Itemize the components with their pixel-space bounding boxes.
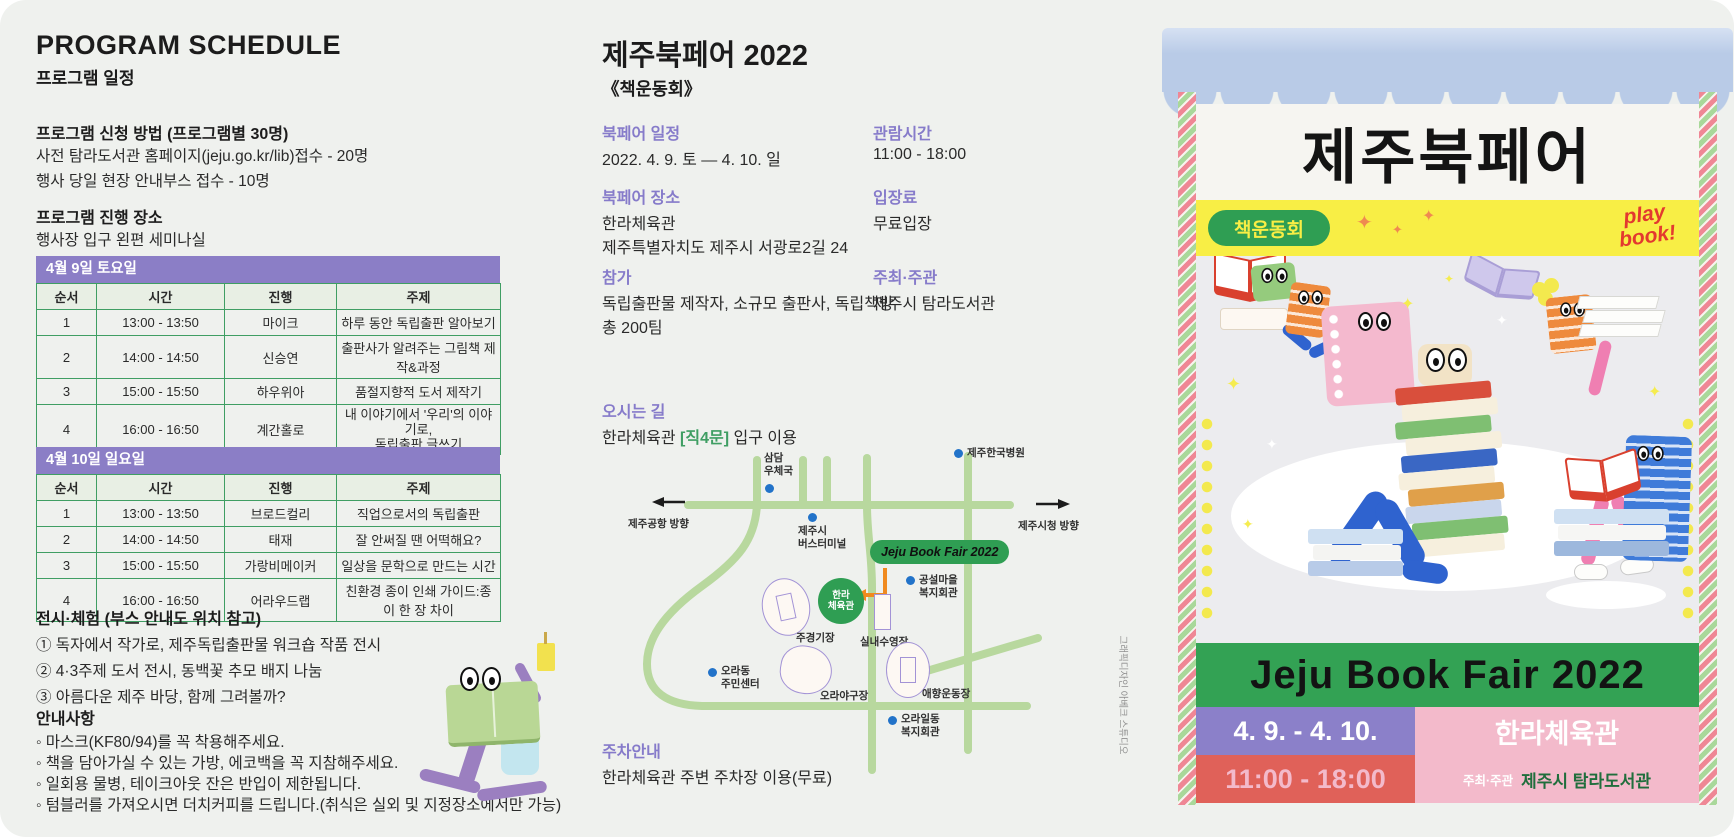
poi-dot (906, 576, 915, 585)
day1-header: 4월 9일 토요일 (36, 256, 500, 283)
eye (460, 667, 479, 691)
character-eyes (1298, 290, 1323, 304)
cityhall-direction-label: 제주시청 방향 (1018, 518, 1079, 533)
eye (1312, 290, 1323, 304)
fee-label: 입장료 (873, 184, 917, 208)
exhibit-item: ① 독자에서 작가로, 제주독립출판물 워크숍 작품 전시 (36, 633, 381, 659)
eye (1448, 348, 1467, 372)
cell: 신승연 (225, 336, 337, 379)
poster-host-cell: 주최·주관 제주시 탐라도서관 (1415, 755, 1699, 803)
apply-method-block: 프로그램 신청 방법 (프로그램별 30명) 사전 탐라도서관 홈페이지(jej… (36, 120, 368, 194)
cell: 품절지향적 도서 제작기 (337, 379, 501, 405)
table-row: 3 15:00 - 15:50 하우위아 품절지향적 도서 제작기 (37, 379, 501, 405)
col-topic: 주제 (337, 284, 501, 310)
ground-shadow (1546, 581, 1666, 609)
stacked-book (1308, 561, 1403, 576)
day2-header: 4월 10일 일요일 (36, 447, 500, 474)
fair-location-badge: Jeju Book Fair 2022 (870, 540, 1009, 564)
program-venue-block: 프로그램 진행 장소 행사장 입구 왼편 세미나실 (36, 204, 206, 253)
poi-gongseol: 공설마을 복지회관 (919, 574, 958, 599)
poster-venue-cell: 한라체육관 (1415, 707, 1699, 755)
host-value: 제주시 탐라도서관 (873, 290, 995, 314)
airport-direction-label: 제주공항 방향 (628, 516, 689, 531)
eye (1276, 268, 1288, 283)
eye (1261, 268, 1273, 283)
striped-pole-right (1699, 92, 1717, 805)
program-schedule-title: PROGRAM SCHEDULE (36, 30, 341, 61)
paper-sheet (1576, 296, 1659, 309)
venue-map: 제주공항 방향 제주시청 방향 삼담 우체국 제주한국병원 제주시 버스터미널 … (590, 418, 1090, 790)
hours-label: 관람시간 (873, 120, 932, 144)
stacked-book (1554, 541, 1669, 556)
eye (1376, 312, 1391, 331)
program-venue-heading: 프로그램 진행 장소 (36, 204, 206, 228)
host-label: 주최·주관 (873, 264, 937, 288)
cell: 일상을 문학으로 만드는 시간 (337, 553, 501, 579)
reading-character-illustration (405, 633, 585, 813)
stadium-field (775, 593, 796, 622)
table-row: 2 14:00 - 14:50 신승연 출판사가 알려주는 그림책 제작&과정 (37, 336, 501, 379)
fair-subtitle: 《책운동회》 (602, 76, 701, 101)
apply-method-heading: 프로그램 신청 방법 (프로그램별 30명) (36, 120, 368, 144)
sparkle-icon: ✦ (1392, 222, 1403, 238)
cell: 15:00 - 15:50 (97, 553, 225, 579)
parking-value: 한라체육관 주변 주차장 이용(무료) (602, 764, 832, 788)
join-label: 참가 (602, 264, 631, 288)
table-header-row: 순서 시간 진행 주제 (37, 284, 501, 310)
poi-ora-center: 오라동 주민센터 (721, 665, 760, 690)
col-order: 순서 (37, 475, 97, 501)
poster-sign-title: 제주북페어 (1196, 104, 1699, 200)
cell: 가랑비메이커 (225, 553, 337, 579)
character-eyes (1637, 446, 1663, 461)
place-value2: 제주특별자치도 제주시 서광로2길 24 (602, 234, 848, 258)
poi-bus-terminal: 제주시 버스터미널 (798, 525, 846, 550)
join-value2: 총 200팀 (602, 314, 663, 338)
book-page (1601, 447, 1641, 501)
cell: 15:00 - 15:50 (97, 379, 225, 405)
cell: 브로드컬리 (225, 501, 337, 527)
apply-method-line1: 사전 탐라도서관 홈페이지(jeju.go.kr/lib)접수 - 20명 (36, 144, 368, 169)
col-time: 시간 (97, 284, 225, 310)
exhibit-block: 전시·체험 (부스 안내도 위치 참고) ① 독자에서 작가로, 제주독립출판물… (36, 605, 381, 711)
cell: 13:00 - 13:50 (97, 310, 225, 336)
pompom (1532, 282, 1547, 297)
cell: 1 (37, 501, 97, 527)
cell: 1 (37, 310, 97, 336)
sneaker (1574, 564, 1608, 580)
pool-shape (874, 594, 891, 630)
stadium-label: 주경기장 (796, 632, 835, 645)
sparkle-icon: ✦ (1401, 294, 1414, 314)
venue-circle-badge: 한라 체육관 (818, 578, 864, 624)
poi-dot (954, 449, 963, 458)
brochure-page: PROGRAM SCHEDULE 프로그램 일정 프로그램 신청 방법 (프로그… (0, 0, 1734, 837)
poi-ora-welfare: 오라일동 복지회관 (901, 713, 940, 738)
sparkle-icon: ✦ (1496, 312, 1508, 329)
poster-date-cell: 4. 9. - 4. 10. (1196, 707, 1415, 755)
poster-yellow-band: 책운동회 ✦ ✦ ✦ play book! (1196, 200, 1699, 256)
eye (1426, 348, 1445, 372)
cell: 3 (37, 553, 97, 579)
cell: 출판사가 알려주는 그림책 제작&과정 (337, 336, 501, 379)
striped-pole-left (1178, 92, 1196, 805)
paper-sheet (1582, 310, 1665, 323)
col-time: 시간 (97, 475, 225, 501)
col-host: 진행 (225, 284, 337, 310)
eye (1298, 290, 1309, 304)
poster-illustration: ✦ ✦ ✦ ✦ ✦ ✦ ✦ (1196, 256, 1699, 643)
fair-title: 제주북페어 2022 (602, 32, 808, 74)
eye (1358, 312, 1373, 331)
poster-host-value: 제주시 탐라도서관 (1521, 767, 1651, 792)
book-sports-badge: 책운동회 (1208, 210, 1330, 246)
schedule-table-day1: 4월 9일 토요일 순서 시간 진행 주제 1 13:00 - 13:50 마이… (36, 256, 500, 455)
cell: 14:00 - 14:50 (97, 527, 225, 553)
poi-post-office: 삼담 우체국 (764, 452, 793, 477)
play-book-badge: play book! (1612, 200, 1680, 252)
cell: 직업으로서의 독립출판 (337, 501, 501, 527)
poster-time-cell: 11:00 - 18:00 (1196, 755, 1415, 803)
stacked-book (1554, 509, 1669, 524)
schedule-value: 2022. 4. 9. 토 — 4. 10. 일 (602, 146, 781, 170)
cell: 2 (37, 336, 97, 379)
table-row: 3 15:00 - 15:50 가랑비메이커 일상을 문학으로 만드는 시간 (37, 553, 501, 579)
col-host: 진행 (225, 475, 337, 501)
poi-hospital: 제주한국병원 (967, 447, 1025, 460)
schedule-table-day2: 4월 10일 일요일 순서 시간 진행 주제 1 13:00 - 13:50 브… (36, 447, 500, 622)
stacked-book (1308, 529, 1403, 544)
book-page (1214, 256, 1250, 302)
character-eyes (1358, 312, 1391, 331)
schedule-label: 북페어 일정 (602, 120, 680, 144)
poi-dot (708, 668, 717, 677)
sparkle-icon: ✦ (1266, 436, 1278, 453)
sparkle-icon: ✦ (1356, 210, 1373, 235)
blue-book-pile (1554, 508, 1669, 556)
eye (1637, 446, 1649, 461)
character-eyes (1426, 348, 1467, 372)
sparkle-icon: ✦ (1422, 206, 1435, 226)
cell: 14:00 - 14:50 (97, 336, 225, 379)
eye (1652, 446, 1664, 461)
red-open-book-character (1565, 451, 1643, 511)
aehyang-label: 애향운동장 (922, 688, 970, 701)
exhibit-item: ② 4·3주제 도서 전시, 동백꽃 추모 배지 나눔 (36, 659, 381, 685)
poster-awning (1162, 28, 1733, 92)
eye (1560, 302, 1571, 316)
eye (482, 667, 501, 691)
table-row: 1 13:00 - 13:50 브로드컬리 직업으로서의 독립출판 (37, 501, 501, 527)
cell: 13:00 - 13:50 (97, 501, 225, 527)
aehyang-field (900, 657, 916, 683)
hours-value: 11:00 - 18:00 (873, 146, 966, 164)
event-poster: 제주북페어 책운동회 ✦ ✦ ✦ play book! (1162, 28, 1733, 805)
blue-book-pile (1308, 528, 1403, 576)
stacked-book (1558, 525, 1666, 540)
cell: 태재 (225, 527, 337, 553)
program-schedule-subtitle: 프로그램 일정 (36, 64, 135, 89)
cell: 하루 동안 독립출판 알아보기 (337, 310, 501, 336)
stacked-book (1313, 545, 1401, 560)
table-row: 2 14:00 - 14:50 태재 잘 안써질 땐 어떡해요? (37, 527, 501, 553)
exhibit-heading: 전시·체험 (부스 안내도 위치 참고) (36, 605, 381, 629)
col-topic: 주제 (337, 475, 501, 501)
character-eyes (1261, 268, 1287, 283)
place-label: 북페어 장소 (602, 184, 680, 208)
col-order: 순서 (37, 284, 97, 310)
spiral-binding (1326, 311, 1346, 402)
character-eyes (460, 667, 501, 691)
drink-cup (537, 643, 555, 671)
join-value1: 독립출판물 제작자, 소규모 출판사, 독립책방 (602, 290, 894, 314)
cell: 하우위아 (225, 379, 337, 405)
character-leg (477, 780, 548, 802)
sparkle-icon: ✦ (1648, 382, 1661, 402)
cell: 마이크 (225, 310, 337, 336)
baseball-label: 오라야구장 (820, 690, 868, 703)
sparkle-icon: ✦ (1242, 516, 1254, 533)
sparkle-icon: ✦ (1444, 272, 1454, 286)
book-page (1564, 457, 1607, 501)
fee-value: 무료입장 (873, 210, 932, 234)
apply-method-line2: 행사 당일 현장 안내부스 접수 - 10명 (36, 169, 368, 194)
table-header-row: 순서 시간 진행 주제 (37, 475, 501, 501)
paper-sheet (1578, 324, 1661, 337)
poster-title-band: Jeju Book Fair 2022 (1196, 643, 1699, 707)
cell: 잘 안써질 땐 어떡해요? (337, 527, 501, 553)
white-riser (1220, 308, 1288, 330)
program-venue-line: 행사장 입구 왼편 세미나실 (36, 228, 206, 253)
poster-host-label: 주최·주관 (1463, 770, 1513, 789)
table-row: 1 13:00 - 13:50 마이크 하루 동안 독립출판 알아보기 (37, 310, 501, 336)
parking-label: 주차안내 (602, 738, 661, 762)
poi-dot (808, 513, 817, 522)
design-credit: 그래픽디자인 아베크 스튜디오 (1117, 615, 1131, 775)
place-value1: 한라체육관 (602, 210, 676, 234)
yellow-dot-strip (1200, 414, 1214, 619)
cell: 3 (37, 379, 97, 405)
poi-dot (888, 716, 897, 725)
poi-dot (765, 484, 774, 493)
cell: 2 (37, 527, 97, 553)
sparkle-icon: ✦ (1226, 374, 1241, 395)
